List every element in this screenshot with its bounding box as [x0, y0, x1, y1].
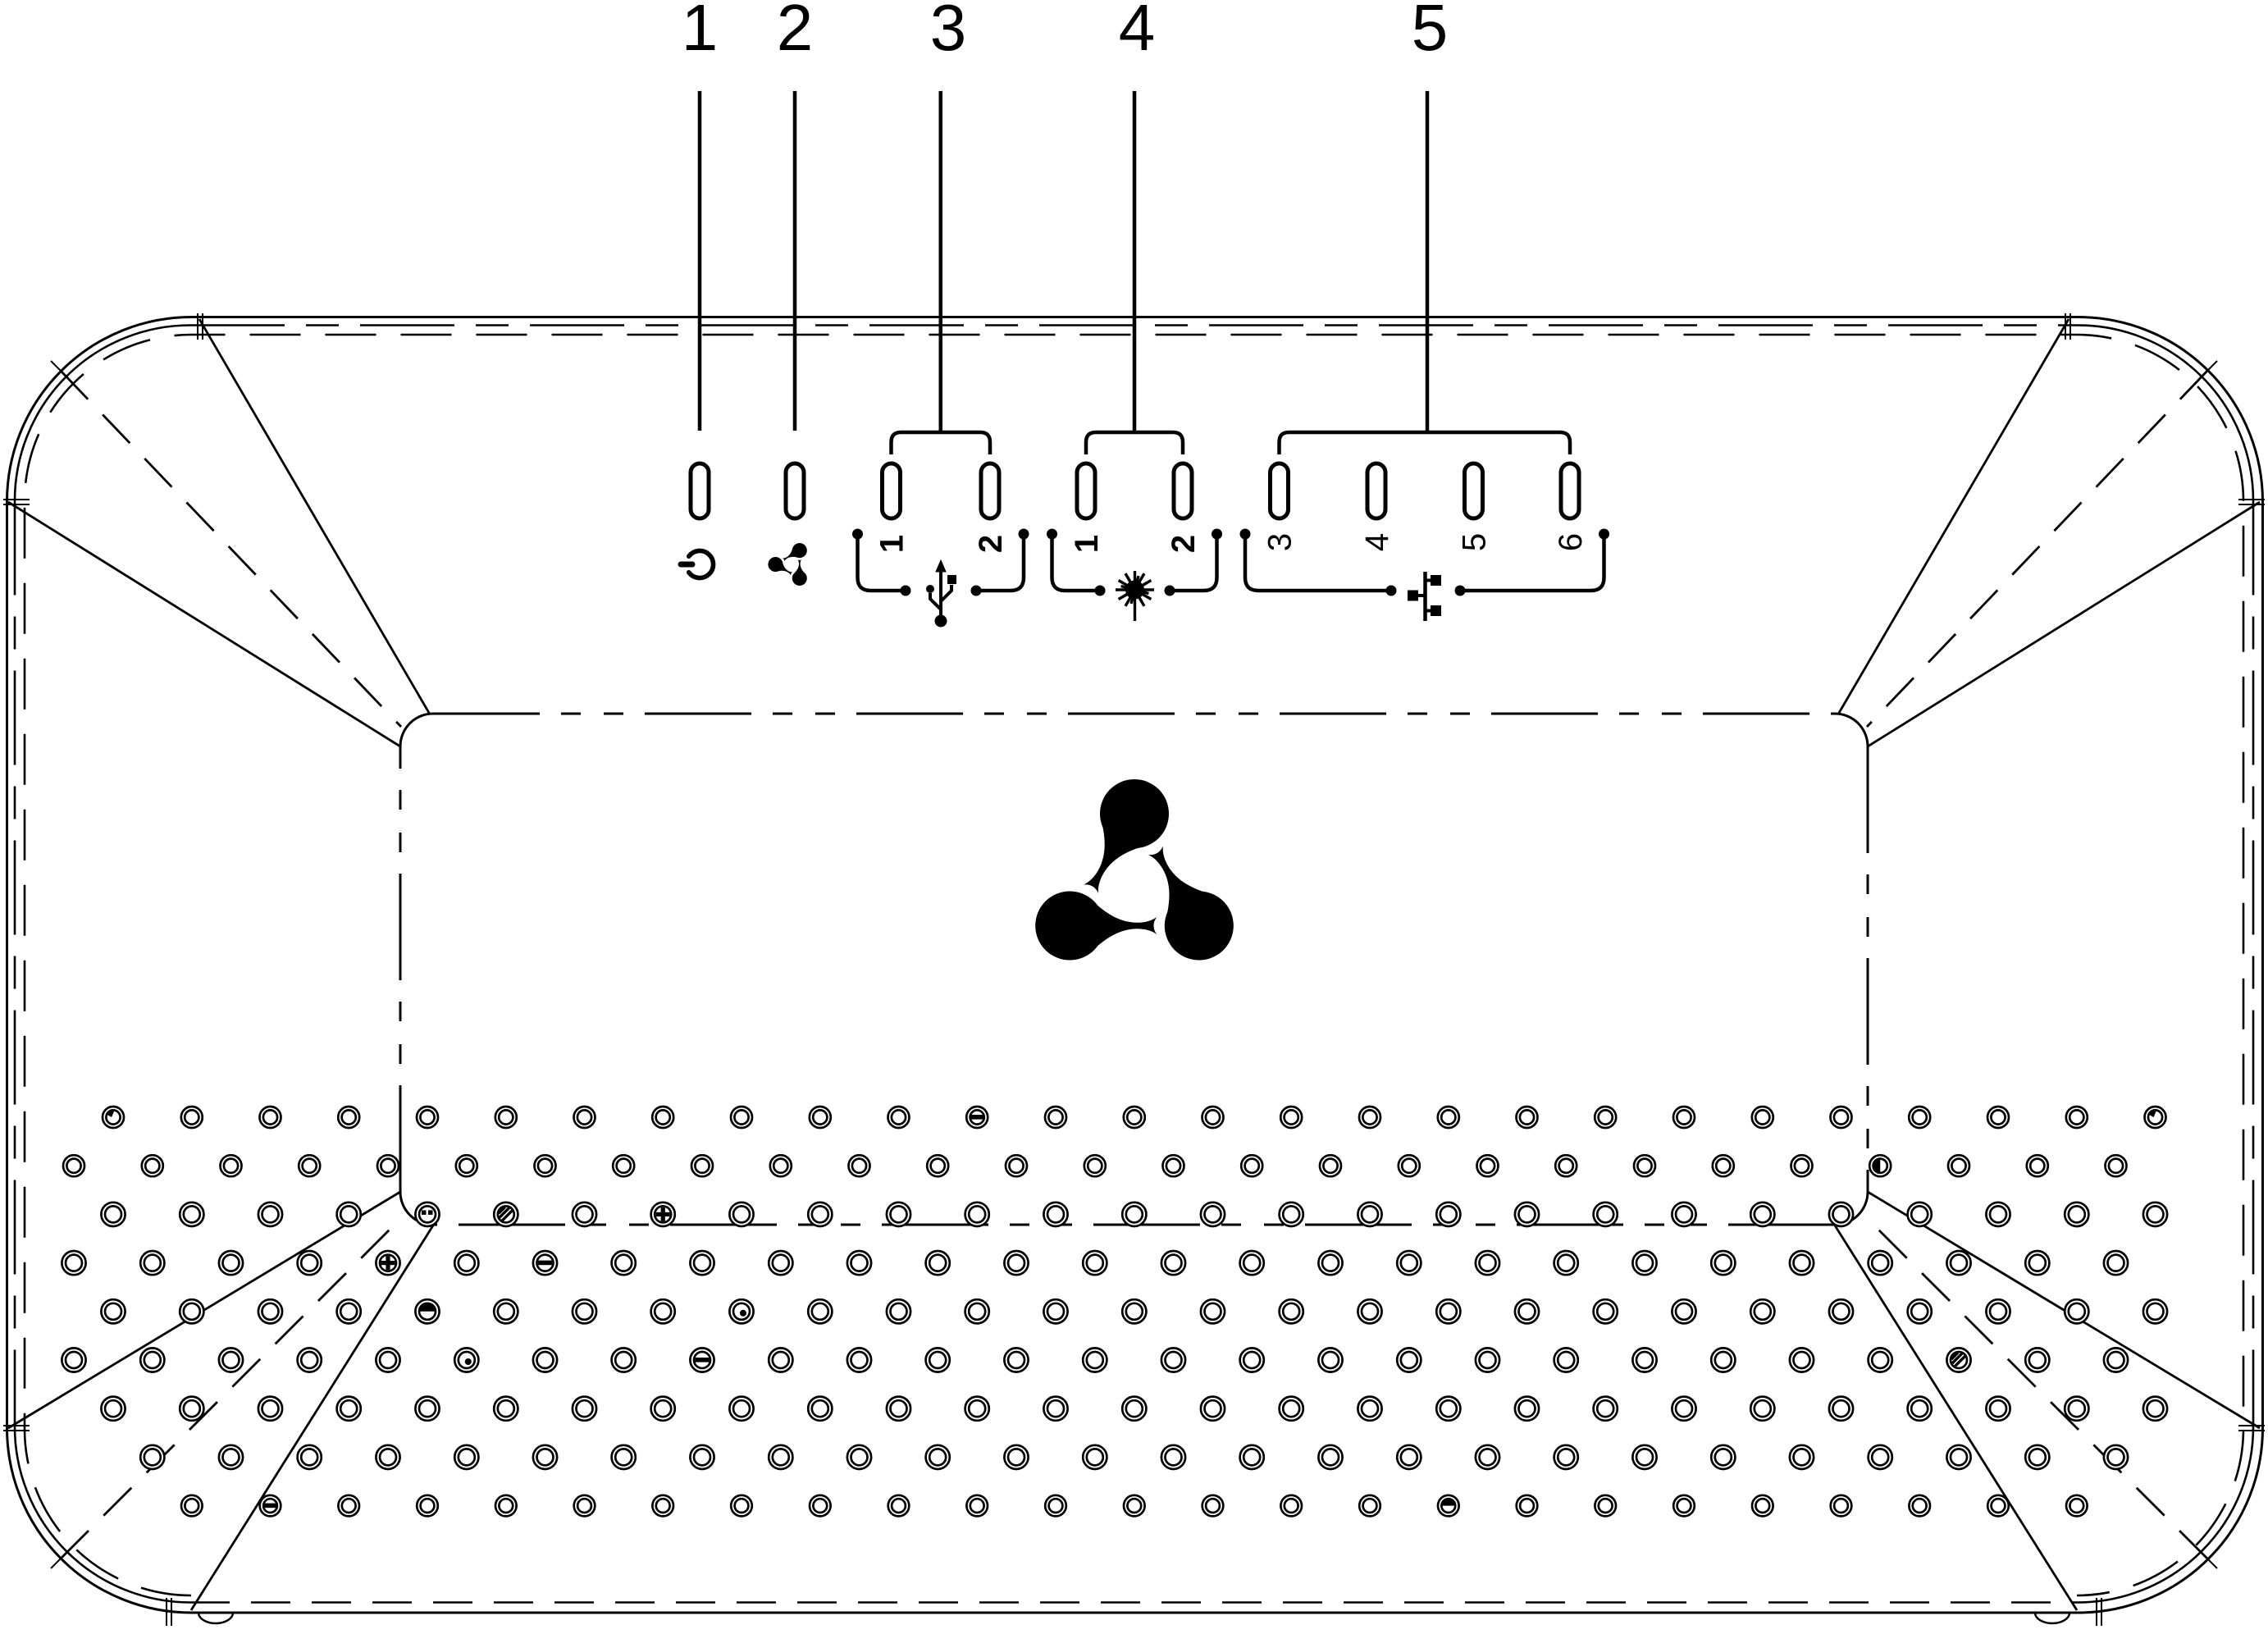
- svg-text:1: 1: [874, 535, 910, 553]
- svg-text:6: 6: [1553, 533, 1589, 551]
- svg-text:5: 5: [1412, 0, 1449, 64]
- svg-text:1: 1: [682, 0, 719, 64]
- svg-text:4: 4: [1359, 533, 1395, 551]
- svg-text:1: 1: [1069, 535, 1105, 553]
- svg-text:3: 3: [1262, 533, 1298, 551]
- svg-text:3: 3: [930, 0, 967, 64]
- svg-text:5: 5: [1457, 533, 1493, 551]
- svg-text:4: 4: [1119, 0, 1156, 64]
- svg-text:2: 2: [777, 0, 814, 64]
- svg-text:2: 2: [973, 535, 1009, 553]
- svg-text:2: 2: [1166, 535, 1202, 553]
